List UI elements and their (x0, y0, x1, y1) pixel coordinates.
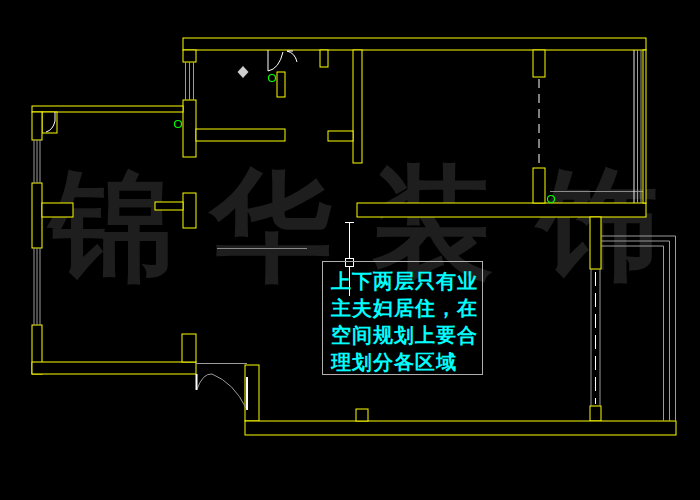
walls[interactable] (32, 38, 676, 435)
wall-leftwing-top[interactable] (32, 106, 183, 112)
annotation-line: 主夫妇居住，在 (331, 295, 482, 322)
annotation-line: 理划分各区域 (331, 349, 482, 375)
wall-left-column-upper[interactable] (183, 50, 196, 62)
wall-left-b[interactable] (32, 183, 42, 248)
window-living-balcony[interactable] (591, 269, 600, 406)
wall-entry-band[interactable] (32, 362, 196, 374)
door-room-b[interactable] (287, 51, 297, 62)
wall-corridor-band[interactable] (196, 129, 285, 141)
wall-room-a-right[interactable] (277, 72, 285, 97)
wall-tpier-vertical[interactable] (183, 193, 196, 228)
wall-bottom-band[interactable] (245, 421, 676, 435)
entry-door-swing-arcs[interactable] (197, 374, 246, 408)
cad-canvas[interactable]: 锦 华 装 饰 (0, 0, 700, 500)
diamond-marker[interactable] (238, 66, 249, 78)
wall-balcony-left-upper[interactable] (590, 217, 601, 269)
window-left-lower[interactable] (34, 248, 40, 325)
wall-mid-stub[interactable] (328, 131, 353, 141)
wall-right-outer[interactable] (643, 50, 646, 203)
green-circle-marker[interactable] (548, 196, 555, 203)
wall-pilaster[interactable] (356, 409, 368, 421)
balcony-enclosure[interactable] (601, 236, 676, 421)
annotation-line: 空间规划上要合 (331, 322, 482, 349)
wall-stub-top[interactable] (320, 50, 328, 67)
wall-top-band[interactable] (183, 38, 646, 50)
wall-left-column-lower[interactable] (183, 100, 196, 157)
wall-left-a[interactable] (32, 112, 42, 140)
wall-main-band[interactable] (357, 203, 646, 217)
watermark-edge-lines (217, 192, 646, 249)
wall-entry-pier[interactable] (182, 334, 196, 362)
wall-balcony-left-stub[interactable] (590, 406, 601, 421)
annotation-text-box[interactable]: 上下两层只有业 主夫妇居住，在 空间规划上要合 理划分各区域 (322, 261, 483, 375)
wall-mid-vertical[interactable] (353, 50, 362, 163)
annotation-line: 上下两层只有业 (331, 268, 482, 295)
wall-tpier-bar[interactable] (155, 202, 183, 210)
window-left-upper[interactable] (34, 140, 40, 183)
green-circle-marker[interactable] (175, 121, 182, 128)
door-room-a[interactable] (268, 50, 283, 71)
floor-plan-drawing[interactable] (0, 0, 700, 500)
window-top-left[interactable] (186, 62, 194, 100)
green-circle-marker[interactable] (269, 75, 276, 82)
window-bedroom-right[interactable] (634, 50, 641, 203)
wall-partition-stub-top[interactable] (533, 50, 545, 77)
doors[interactable] (46, 50, 297, 410)
wall-partition-stub-bottom[interactable] (533, 168, 545, 203)
wall-left-pier[interactable] (42, 203, 73, 217)
